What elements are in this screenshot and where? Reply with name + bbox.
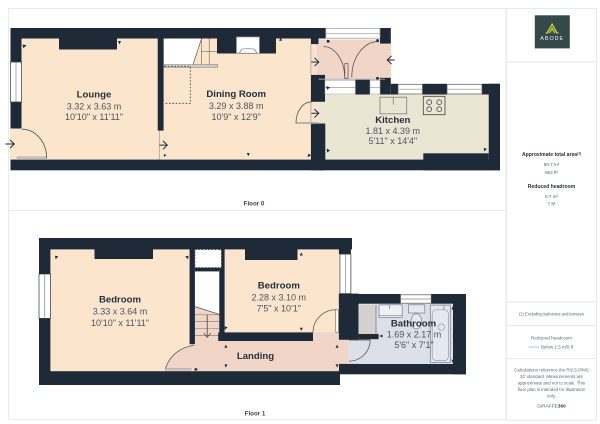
svg-text:5'11" x 14'4": 5'11" x 14'4" — [368, 136, 417, 146]
svg-text:1.81 x 4.39 m: 1.81 x 4.39 m — [366, 126, 421, 136]
svg-text:Bedroom: Bedroom — [258, 281, 300, 292]
svg-text:653 ft²: 653 ft² — [545, 170, 558, 175]
svg-text:1.69 x 2.17 m: 1.69 x 2.17 m — [387, 330, 442, 340]
svg-text:Dining Room: Dining Room — [206, 89, 266, 100]
svg-text:Floor 1: Floor 1 — [245, 411, 266, 418]
svg-text:ABODE: ABODE — [540, 36, 564, 42]
svg-text:2.28 x 3.10 m: 2.28 x 3.10 m — [252, 293, 307, 303]
svg-text:7'5" x 10'1": 7'5" x 10'1" — [257, 304, 301, 314]
svg-text:Landing: Landing — [237, 351, 274, 362]
svg-text:GIRAFFE360: GIRAFFE360 — [537, 403, 566, 408]
svg-text:only.: only. — [547, 394, 556, 399]
svg-text:Lounge: Lounge — [77, 89, 112, 100]
svg-text:3C standard. Measurements are: 3C standard. Measurements are — [520, 374, 584, 379]
svg-text:Below 1.5 m/5 ft: Below 1.5 m/5 ft — [541, 345, 574, 350]
svg-text:Calculations reference the RIC: Calculations reference the RICS IPMS — [514, 368, 589, 373]
svg-text:0.7 m²: 0.7 m² — [545, 194, 558, 199]
svg-text:Bedroom: Bedroom — [99, 295, 141, 306]
svg-text:3.33 x 3.64 m: 3.33 x 3.64 m — [93, 307, 148, 317]
svg-text:Reduced headroom: Reduced headroom — [531, 335, 572, 340]
svg-text:Bathroom: Bathroom — [391, 318, 436, 329]
svg-text:60.7 m²: 60.7 m² — [544, 162, 560, 167]
svg-text:Floor 0: Floor 0 — [244, 201, 265, 208]
svg-text:10'9" x 12'9": 10'9" x 12'9" — [212, 112, 261, 122]
svg-text:10'10" x 11'11": 10'10" x 11'11" — [65, 112, 123, 122]
svg-text:Kitchen: Kitchen — [375, 115, 410, 126]
svg-text:approximate and not to scale.: approximate and not to scale. This — [518, 381, 586, 386]
svg-text:3.29 x 3.88 m: 3.29 x 3.88 m — [209, 101, 264, 111]
svg-text:10'10" x 11'11": 10'10" x 11'11" — [91, 318, 149, 328]
svg-text:Approximate total area(1): Approximate total area(1) — [522, 151, 581, 158]
svg-text:5'6" x 7'1": 5'6" x 7'1" — [394, 340, 433, 350]
svg-text:3.32 x 3.63 m: 3.32 x 3.63 m — [67, 101, 122, 111]
svg-text:(1) Excluding balconies and te: (1) Excluding balconies and terraces — [519, 312, 584, 317]
svg-text:Reduced headroom: Reduced headroom — [528, 184, 576, 190]
svg-text:floor plan is intended for ill: floor plan is intended for illustration — [518, 387, 586, 392]
svg-text:7 ft²: 7 ft² — [548, 202, 556, 207]
